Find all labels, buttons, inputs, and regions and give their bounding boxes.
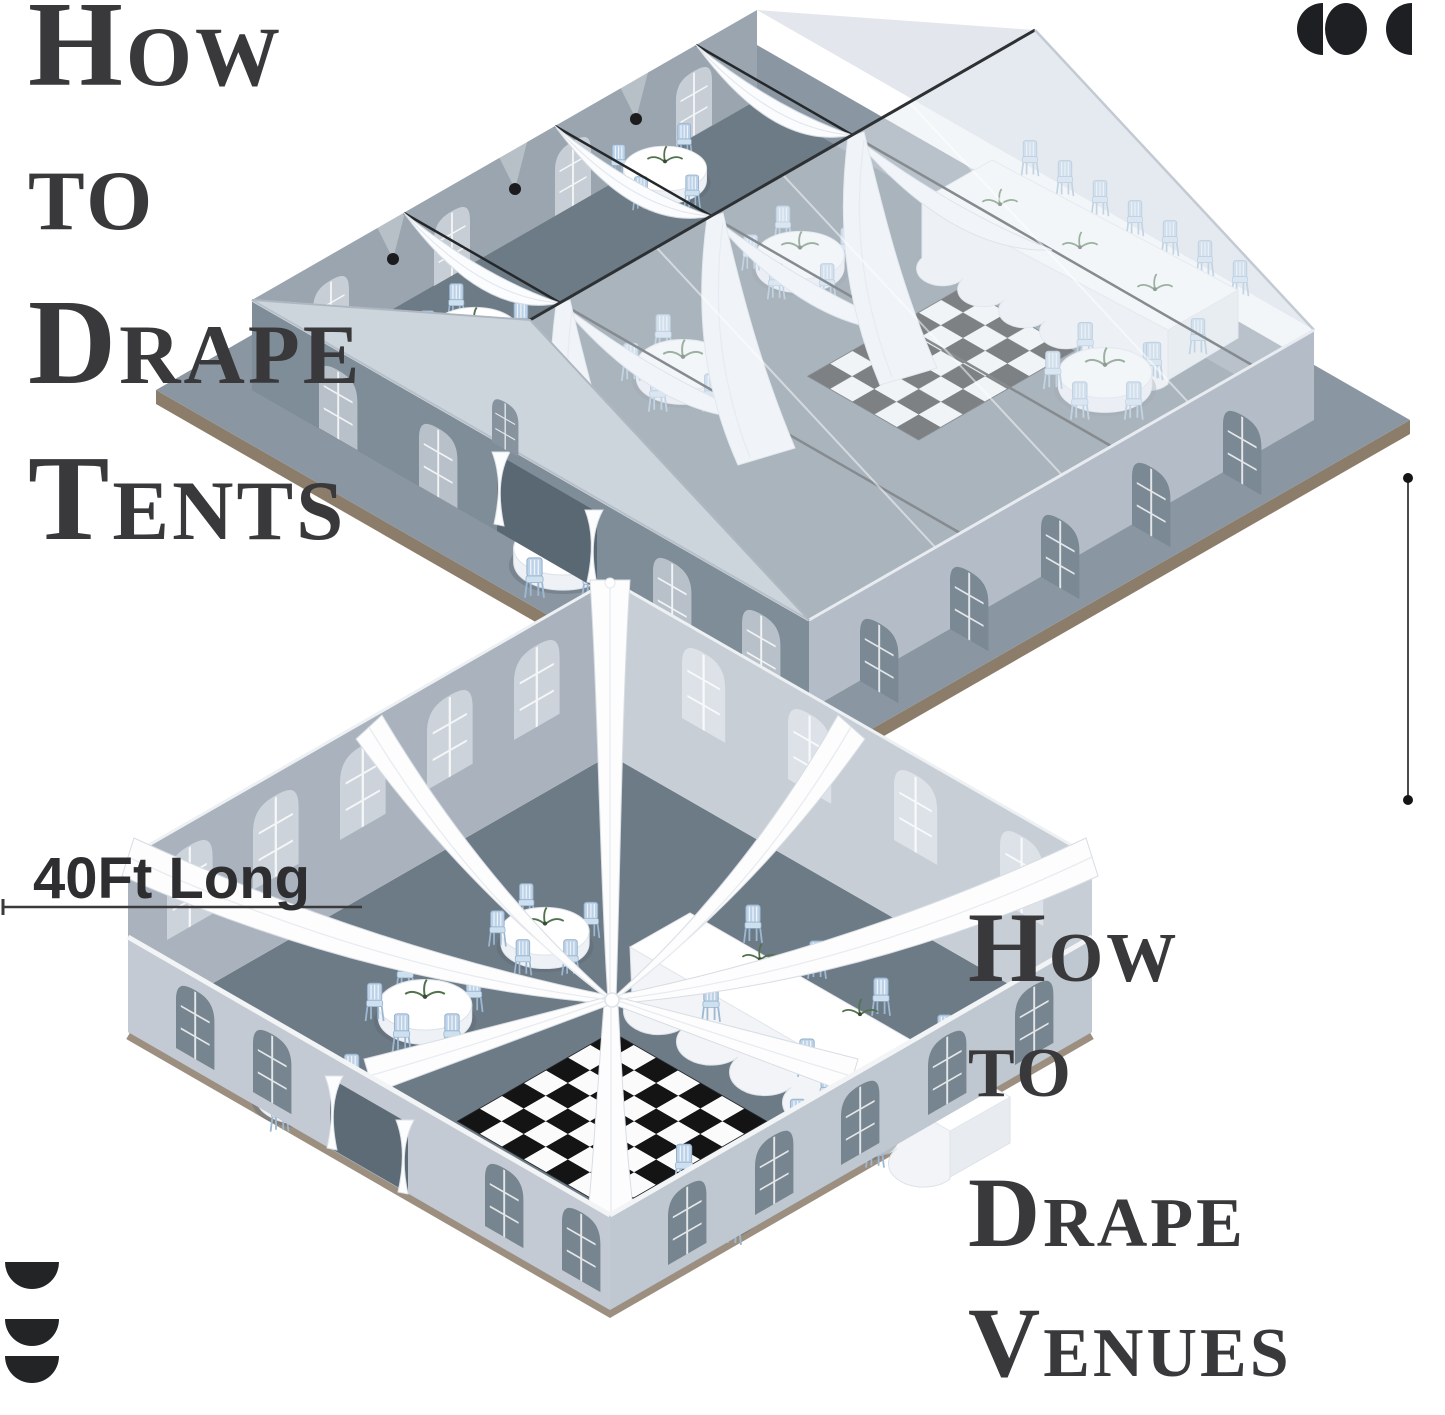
tents-title-line-3: Drape: [28, 282, 363, 404]
venues-title-line-1: How: [968, 898, 1179, 998]
poster: How to Drape Tents How to Drape Venues 4…: [0, 0, 1445, 1415]
venues-title-line-4: Venues: [968, 1293, 1292, 1393]
height-dimension-line: [1403, 473, 1413, 805]
venues-title-line-2: to: [968, 1013, 1074, 1113]
venues-title-line-3: Drape: [968, 1163, 1246, 1263]
length-dimension-label: 40Ft Long: [33, 845, 310, 912]
logo-three-half-discs-icon: [5, 1262, 59, 1383]
logo-three-moons-icon: [1297, 3, 1412, 55]
tents-title-line-4: Tents: [28, 438, 346, 560]
tents-title-line-1: How: [28, 0, 283, 106]
tents-title-line-2: to: [28, 128, 155, 250]
